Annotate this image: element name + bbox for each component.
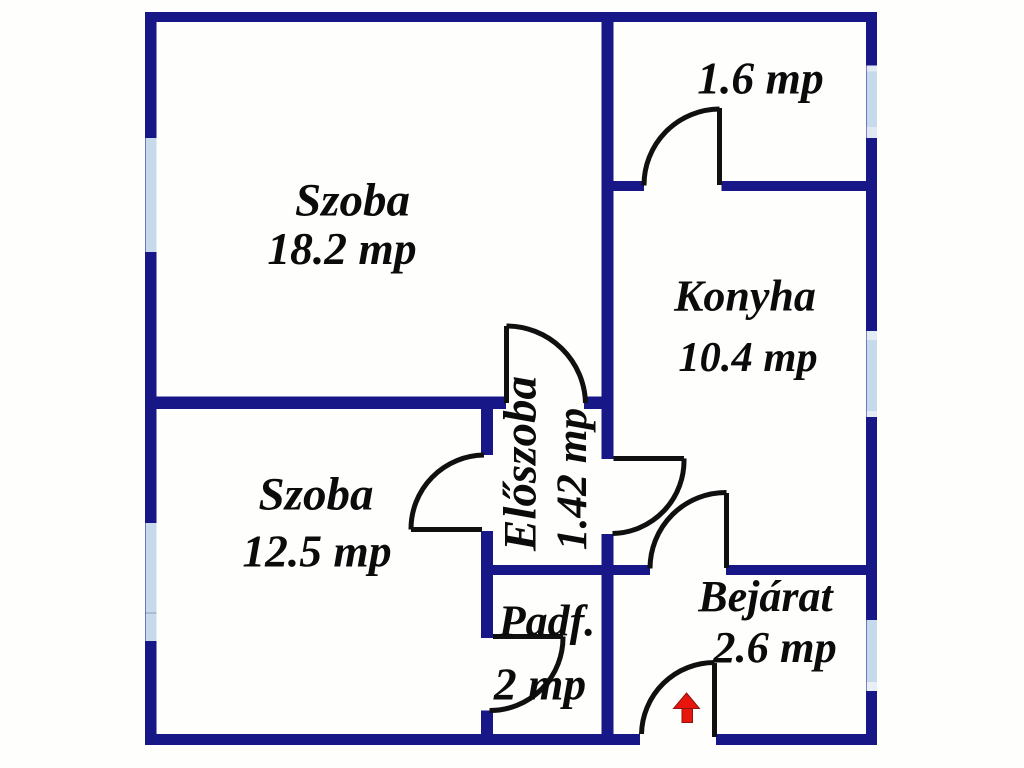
svg-text:Konyha: Konyha: [673, 272, 816, 321]
svg-text:2 mp: 2 mp: [493, 659, 586, 710]
svg-text:1.42 mp: 1.42 mp: [548, 408, 596, 551]
svg-text:2.6 mp: 2.6 mp: [712, 622, 837, 672]
svg-text:Bejárat: Bejárat: [697, 572, 834, 621]
svg-text:12.5 mp: 12.5 mp: [242, 526, 391, 577]
svg-text:10.4 mp: 10.4 mp: [678, 334, 817, 381]
svg-text:Padf.: Padf.: [498, 597, 596, 646]
svg-text:18.2 mp: 18.2 mp: [267, 223, 416, 274]
svg-text:Szoba: Szoba: [295, 175, 410, 227]
svg-text:1.6 mp: 1.6 mp: [697, 53, 823, 104]
svg-text:Szoba: Szoba: [259, 469, 374, 521]
svg-text:Előszoba: Előszoba: [495, 376, 547, 552]
